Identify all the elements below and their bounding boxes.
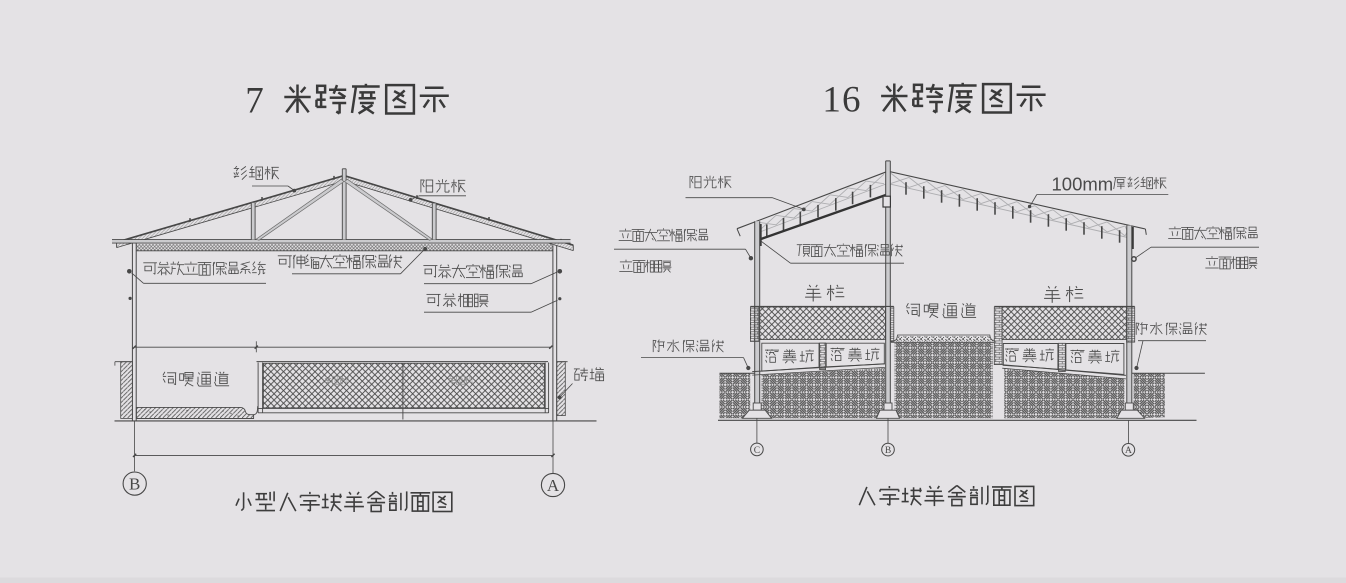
svg-text:A: A (547, 476, 560, 495)
svg-text:A: A (1125, 446, 1132, 456)
svg-text:100mm: 100mm (1052, 173, 1114, 194)
svg-text:6: 6 (842, 79, 861, 120)
svg-text:B: B (129, 475, 140, 494)
svg-text:1: 1 (822, 79, 841, 120)
svg-text:C: C (754, 446, 760, 456)
svg-text:B: B (885, 446, 891, 456)
svg-text:7: 7 (245, 80, 264, 121)
